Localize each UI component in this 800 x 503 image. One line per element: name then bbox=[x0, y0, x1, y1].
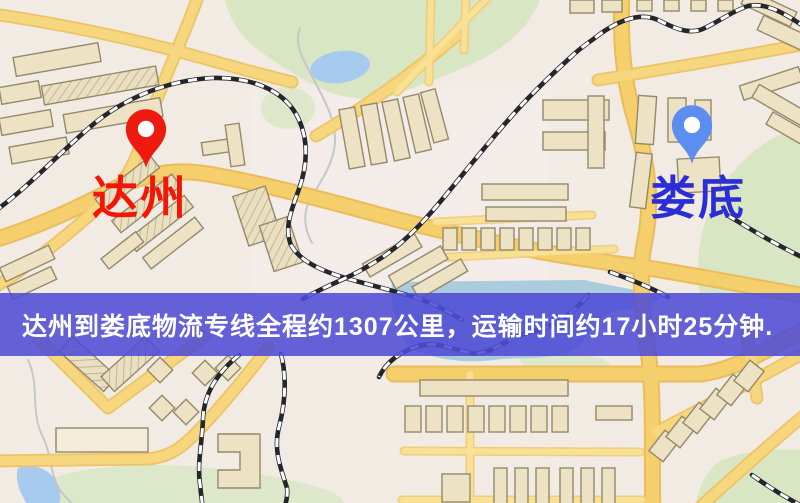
map-view: 达州 娄底 达州到娄底物流专线全程约1307公里，运输时间约17小时25分钟. bbox=[0, 0, 800, 503]
map-background bbox=[0, 0, 800, 503]
destination-label: 娄底 bbox=[650, 176, 746, 222]
route-info-text: 达州到娄底物流专线全程约1307公里，运输时间约17小时25分钟. bbox=[0, 307, 773, 343]
origin-pin-icon[interactable] bbox=[123, 108, 169, 170]
origin-label: 达州 bbox=[92, 176, 188, 222]
destination-pin-icon[interactable] bbox=[669, 104, 715, 166]
route-info-banner: 达州到娄底物流专线全程约1307公里，运输时间约17小时25分钟. bbox=[0, 293, 800, 356]
